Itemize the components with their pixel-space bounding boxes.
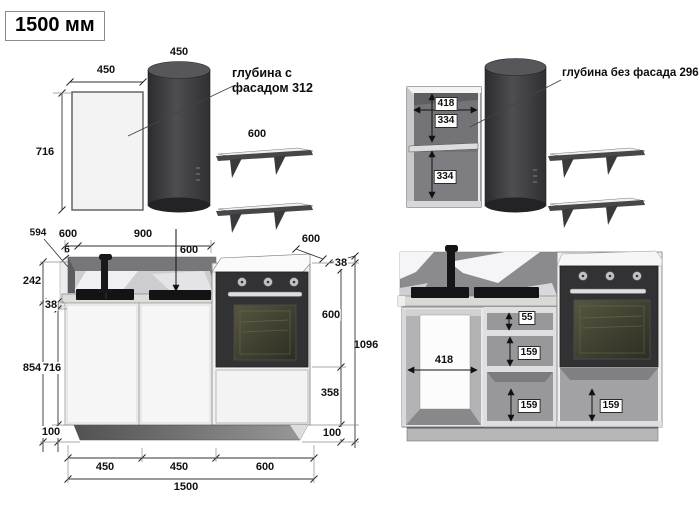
hood-cylinder-right xyxy=(485,59,546,213)
drawer-front-under-oven xyxy=(216,370,308,423)
shelf xyxy=(548,148,645,178)
plinth-left xyxy=(74,425,308,440)
open-drawer xyxy=(487,336,553,366)
kitchen-dimension-drawing: 1500 мм глубина с фасадом 312 глубина бе… xyxy=(0,0,700,530)
open-wall-cabinet xyxy=(407,87,481,207)
lower-right-view xyxy=(398,245,662,441)
oven-housing-carcass xyxy=(557,251,662,427)
oven-housing xyxy=(212,254,310,425)
base-cabinets-left xyxy=(65,303,212,425)
title-box: 1500 мм xyxy=(5,11,105,41)
upper-right-view xyxy=(407,59,645,229)
hood-cylinder-left xyxy=(148,62,210,213)
sink xyxy=(411,287,469,298)
lower-left-view xyxy=(40,229,360,483)
open-drawer xyxy=(487,313,553,331)
oven-handle xyxy=(228,292,302,297)
shelf xyxy=(216,148,313,178)
oven-window xyxy=(574,300,650,359)
note-depth-without-facade: глубина без фасада 296 xyxy=(562,67,699,81)
hob xyxy=(149,290,211,300)
hob xyxy=(474,287,539,298)
tall-panel xyxy=(72,92,143,210)
plinth-right xyxy=(407,427,658,441)
shelf xyxy=(216,203,313,233)
carcass-open xyxy=(402,307,558,427)
shelf xyxy=(548,198,645,228)
title-text: 1500 мм xyxy=(15,14,95,36)
oven-window xyxy=(234,305,296,360)
backsplash-left xyxy=(68,257,216,293)
oven-handle xyxy=(570,289,646,294)
note-depth-with-facade: глубина с фасадом 312 xyxy=(232,66,337,96)
cabinet-back-panel xyxy=(420,315,470,409)
